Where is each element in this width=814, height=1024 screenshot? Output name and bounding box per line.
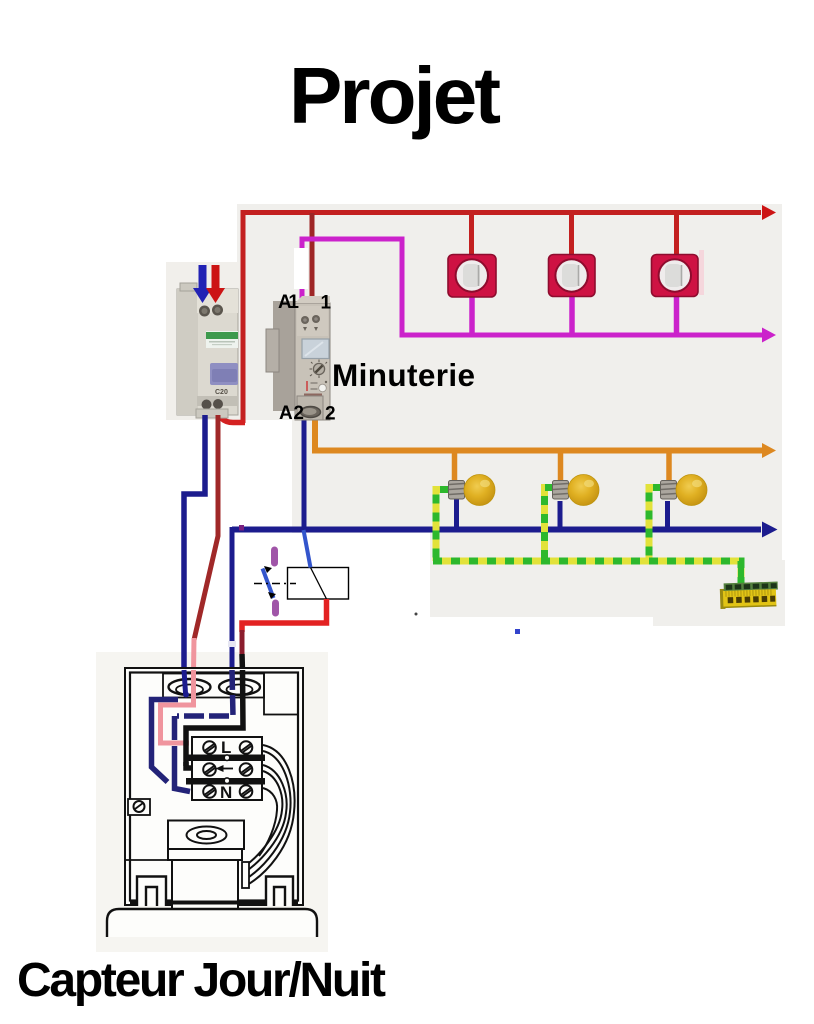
svg-text:2: 2 <box>325 404 336 425</box>
svg-text:Projet: Projet <box>289 51 501 140</box>
svg-text:L: L <box>221 738 231 757</box>
svg-text:N: N <box>220 783 232 802</box>
svg-text:Minuterie: Minuterie <box>332 357 475 393</box>
svg-text:C20: C20 <box>215 389 228 396</box>
svg-text:Capteur Jour/Nuit: Capteur Jour/Nuit <box>17 954 386 1007</box>
svg-text:A2: A2 <box>279 403 304 424</box>
svg-text:A1: A1 <box>278 292 299 313</box>
svg-text:1: 1 <box>321 293 332 314</box>
